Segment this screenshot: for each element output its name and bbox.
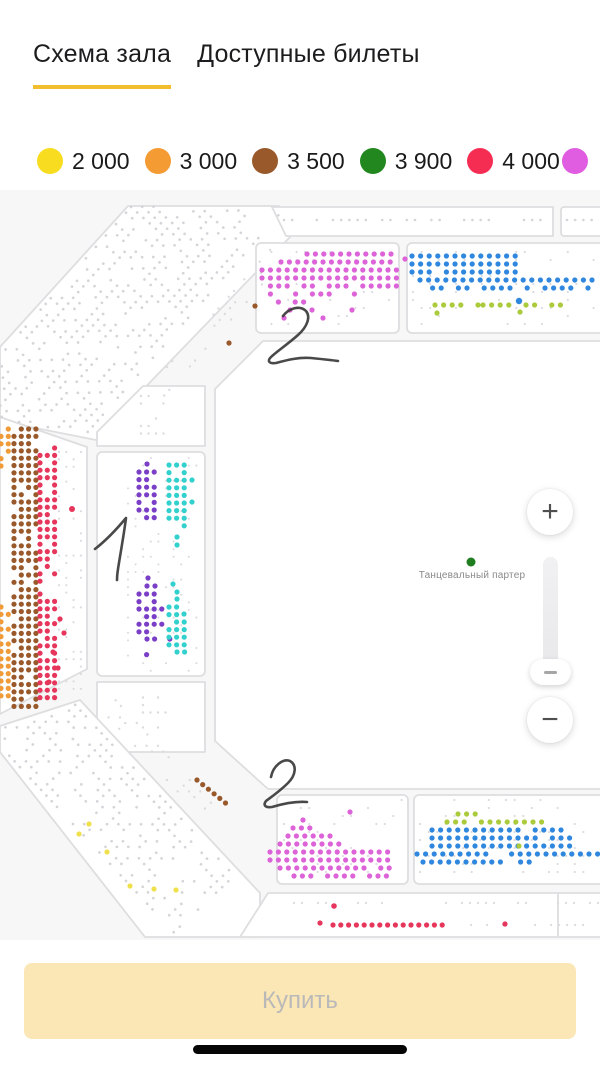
drag-handle-icon — [544, 671, 557, 674]
plus-icon: + — [541, 497, 559, 527]
price-dot-icon — [562, 148, 588, 174]
legend-label: 3 900 — [395, 148, 453, 175]
price-dot-icon — [252, 148, 278, 174]
legend-item: 3 000 — [145, 148, 238, 175]
home-indicator — [193, 1045, 407, 1054]
price-dot-icon — [37, 148, 63, 174]
zoom-out-button[interactable]: − — [527, 697, 573, 743]
tab-tickets[interactable]: Доступные билеты — [197, 40, 420, 89]
floor-section-label: Танцевальный партер — [345, 570, 599, 581]
venue-map-area: Танцевальный партер + − — [0, 190, 600, 940]
zoom-in-button[interactable]: + — [527, 489, 573, 535]
price-dot-icon — [145, 148, 171, 174]
price-dot-icon — [360, 148, 386, 174]
price-legend: 2 000 3 000 3 500 3 900 4 000 — [0, 144, 600, 178]
seat-map[interactable] — [0, 190, 600, 940]
legend-label: 4 000 — [502, 148, 560, 175]
minus-icon: − — [541, 705, 559, 735]
legend-item: 3 900 — [360, 148, 453, 175]
legend-item: 4 000 — [467, 148, 560, 175]
legend-item: 2 000 — [37, 148, 130, 175]
legend-label: 3 500 — [287, 148, 345, 175]
legend-label: 2 000 — [72, 148, 130, 175]
tab-bar: Схема зала Доступные билеты — [33, 40, 420, 89]
price-dot-icon — [467, 148, 493, 174]
legend-item: 3 500 — [252, 148, 345, 175]
tab-schema[interactable]: Схема зала — [33, 40, 171, 89]
buy-button[interactable]: Купить — [24, 963, 576, 1039]
legend-label: 3 000 — [180, 148, 238, 175]
zoom-slider-handle[interactable] — [530, 659, 571, 685]
